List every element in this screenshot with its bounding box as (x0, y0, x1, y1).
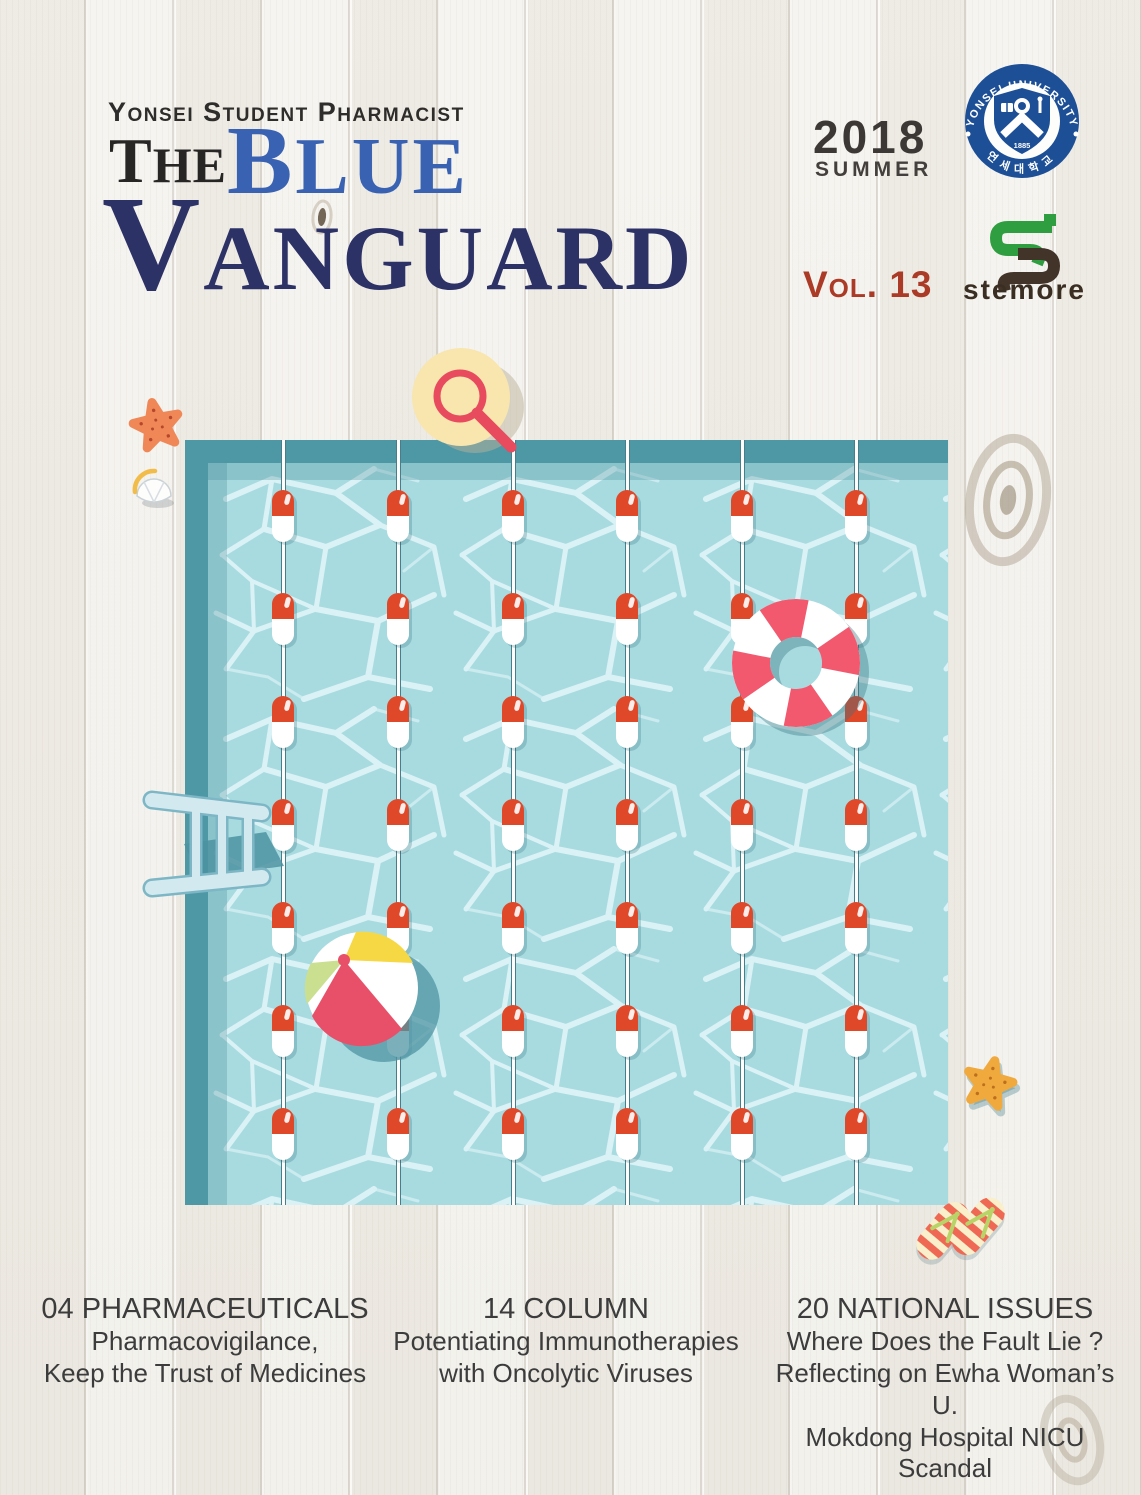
capsule-float (502, 1108, 524, 1160)
article-heading: 04 PHARMACEUTICALS (40, 1293, 370, 1326)
article-heading: 20 NATIONAL ISSUES (768, 1293, 1122, 1326)
capsule-float (502, 1005, 524, 1057)
article-line: Where Does the Fault Lie ? (768, 1326, 1122, 1358)
flip-flops-icon (908, 1178, 1020, 1290)
capsule-float (731, 799, 753, 851)
magazine-cover: Yonsei Student Pharmacist THE BLUE VANGU… (0, 0, 1141, 1495)
magnifier-on-hat-icon (390, 330, 565, 505)
beach-ball-icon (288, 912, 448, 1072)
capsule-float (616, 1005, 638, 1057)
capsule-float (616, 696, 638, 748)
capsule-float (731, 1108, 753, 1160)
article-line: Pharmacovigilance, (40, 1326, 370, 1358)
capsule-float (616, 593, 638, 645)
capsule-float (387, 593, 409, 645)
article-heading: 14 COLUMN (388, 1293, 744, 1326)
starfish-orange-icon (126, 394, 188, 456)
title-word-vanguard: VANGUARD (102, 176, 694, 312)
article-line: with Oncolytic Viruses (388, 1358, 744, 1390)
capsule-float (272, 1108, 294, 1160)
capsule-float (845, 490, 867, 542)
article-teaser-national-issues: 20 NATIONAL ISSUES Where Does the Fault … (768, 1293, 1122, 1485)
capsule-float (731, 490, 753, 542)
pool-ladder-icon (138, 782, 290, 914)
title-vanguard-cap: V (102, 169, 203, 319)
capsule-float (502, 593, 524, 645)
capsule-float (272, 490, 294, 542)
starfish-gold-icon (954, 1048, 1018, 1112)
capsule-float (845, 902, 867, 954)
capsule-float (387, 1108, 409, 1160)
capsule-float (616, 1108, 638, 1160)
yonsei-university-seal-icon: YONSEI UNIVERSITY 연세대학교 1885 (958, 58, 1086, 186)
article-line: Keep the Trust of Medicines (40, 1358, 370, 1390)
capsule-float (731, 1005, 753, 1057)
issue-season: SUMMER (815, 158, 932, 182)
capsule-float (616, 799, 638, 851)
seal-year-1885: 1885 (1014, 141, 1031, 150)
water-edge-shadow-top (208, 463, 948, 480)
capsule-float (616, 902, 638, 954)
issue-volume: Vol. 13 (803, 264, 933, 306)
capsule-float (845, 1108, 867, 1160)
capsule-float (616, 490, 638, 542)
capsule-float (387, 799, 409, 851)
life-ring-icon (718, 583, 882, 747)
water-caustics-pattern (208, 463, 948, 1205)
capsule-float (272, 593, 294, 645)
capsule-float (272, 696, 294, 748)
swimming-pool-illustration (185, 440, 948, 1205)
capsule-float (845, 799, 867, 851)
capsule-float (387, 696, 409, 748)
article-line: Reflecting on Ewha Woman’s U. (768, 1358, 1122, 1421)
article-line: Mokdong Hospital NICU Scandal (768, 1422, 1122, 1485)
article-line: Potentiating Immunotherapies (388, 1326, 744, 1358)
article-teaser-pharmaceuticals: 04 PHARMACEUTICALS Pharmacovigilance, Ke… (40, 1293, 370, 1390)
capsule-float (731, 902, 753, 954)
stemore-wordmark: stemore (963, 274, 1086, 306)
capsule-float (502, 902, 524, 954)
capsule-float (502, 696, 524, 748)
article-teaser-column: 14 COLUMN Potentiating Immunotherapies w… (388, 1293, 744, 1390)
seashell-icon (128, 462, 180, 510)
title-vanguard-rest: ANGUARD (203, 207, 694, 309)
issue-year: 2018 (813, 110, 927, 164)
capsule-float (502, 799, 524, 851)
capsule-float (845, 1005, 867, 1057)
